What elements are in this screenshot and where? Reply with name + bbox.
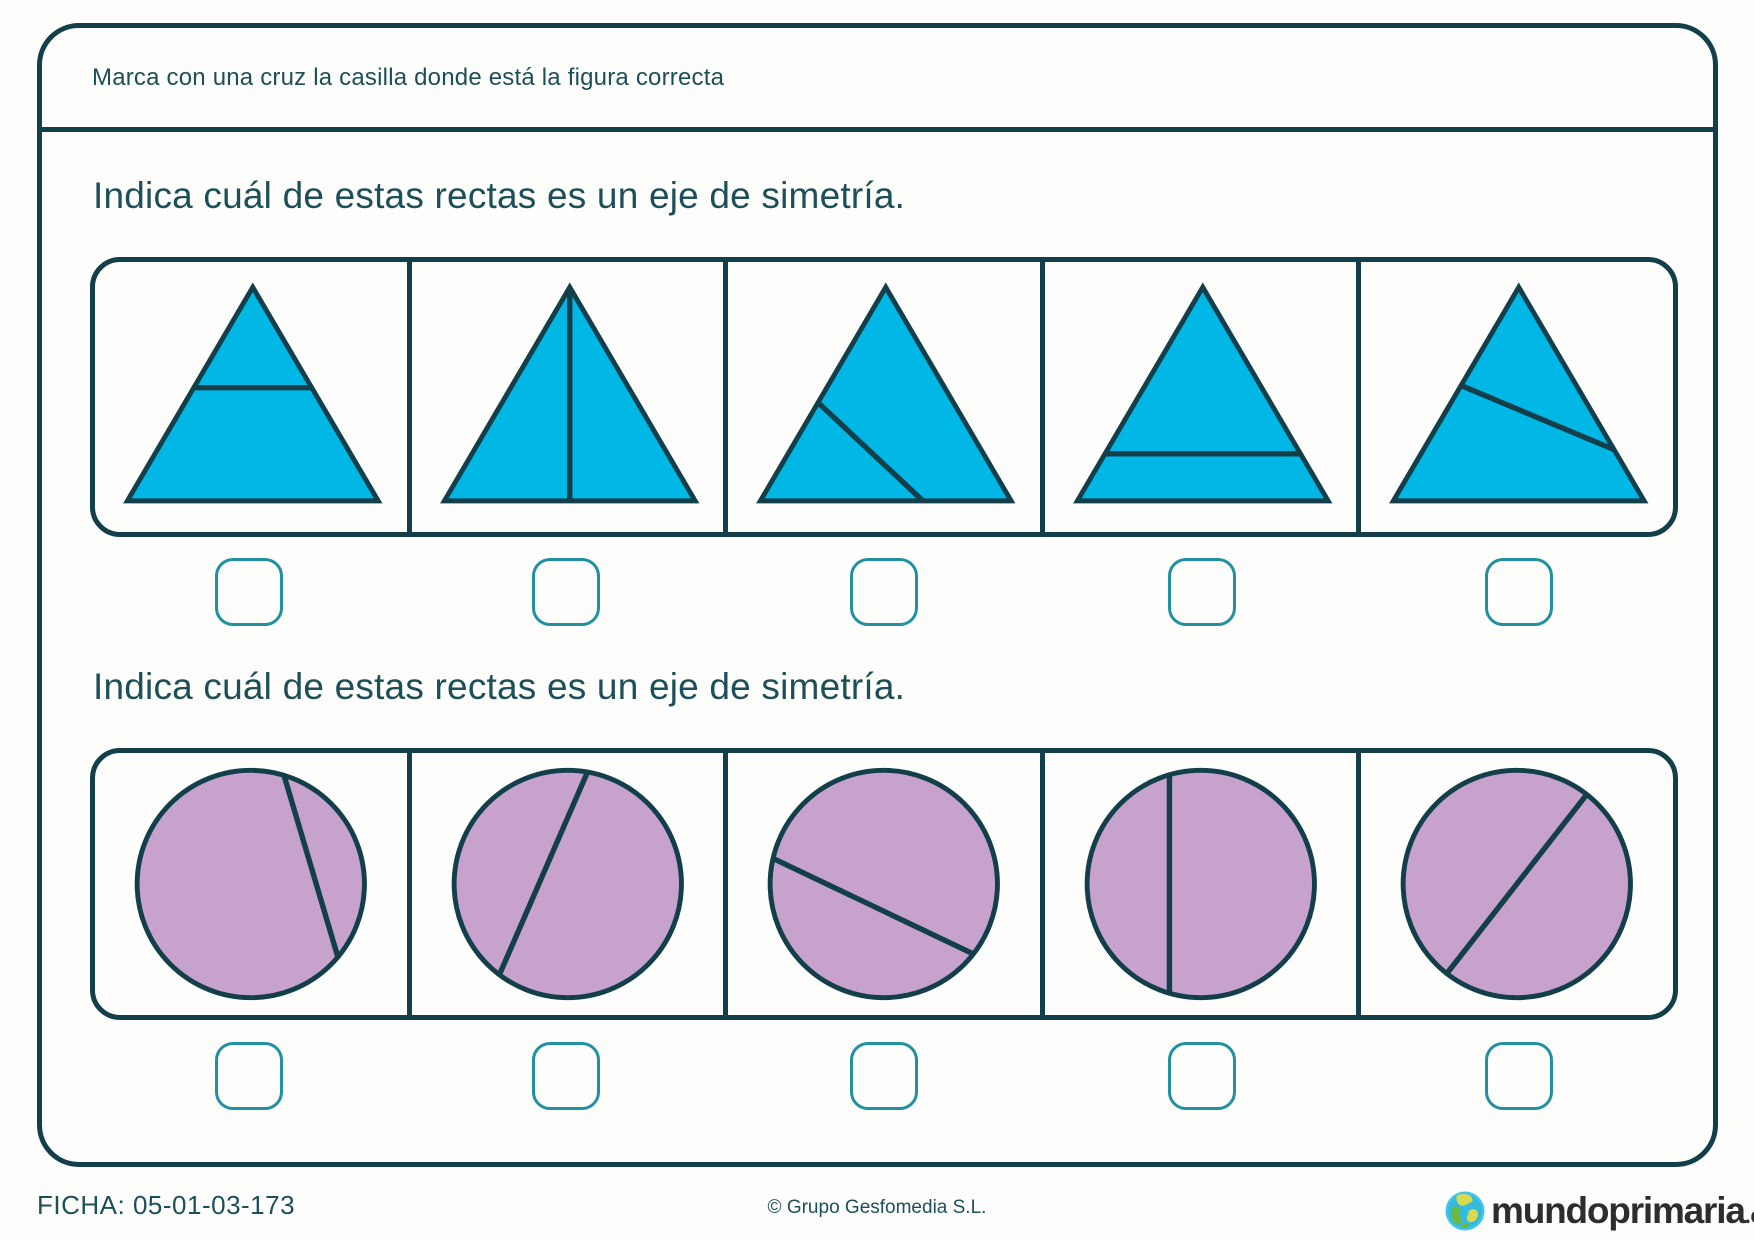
circle-answer-checkbox-row: [90, 1042, 1678, 1110]
triangle-answer-checkbox-row: [90, 558, 1678, 626]
answer-checkbox-circles-4[interactable]: [1168, 1042, 1236, 1110]
checkbox-slot: [725, 558, 1043, 626]
answer-checkbox-triangles-3[interactable]: [850, 558, 918, 626]
checkbox-slot: [1360, 558, 1678, 626]
triangle-lower-horizontal-line: [1045, 262, 1357, 532]
answer-checkbox-triangles-4[interactable]: [1168, 558, 1236, 626]
worksheet-header: Marca con una cruz la casilla donde está…: [42, 28, 1713, 132]
checkbox-slot: [1360, 1042, 1678, 1110]
circle-chord-top-to-lower-right: [95, 753, 407, 1015]
worksheet-sheet: Marca con una cruz la casilla donde está…: [37, 23, 1718, 1167]
answer-checkbox-triangles-1[interactable]: [215, 558, 283, 626]
logo-wordmark: mundoprimaria: [1491, 1190, 1745, 1232]
figure-cell-circles-3: [723, 753, 1040, 1015]
figure-cell-triangles-5: [1356, 262, 1673, 532]
figure-cell-circles-5: [1356, 753, 1673, 1015]
mundoprimaria-logo: mundoprimaria.com: [1444, 1181, 1754, 1232]
circle-options-row: [90, 748, 1678, 1020]
checkbox-slot: [1043, 558, 1361, 626]
answer-checkbox-triangles-2[interactable]: [532, 558, 600, 626]
checkbox-slot: [408, 1042, 726, 1110]
circle-vertical-off-center-chord: [1045, 753, 1357, 1015]
figure-cell-circles-2: [407, 753, 724, 1015]
figure-cell-triangles-3: [723, 262, 1040, 532]
figure-cell-triangles-4: [1040, 262, 1357, 532]
checkbox-slot: [90, 1042, 408, 1110]
triangle-diagonal-left-to-base-line: [728, 262, 1040, 532]
header-instruction-text: Marca con una cruz la casilla donde está…: [92, 64, 724, 92]
logo-domain-suffix: .com: [1745, 1203, 1754, 1229]
answer-checkbox-circles-5[interactable]: [1485, 1042, 1553, 1110]
checkbox-slot: [90, 558, 408, 626]
worksheet-page: Marca con una cruz la casilla donde está…: [0, 0, 1754, 1240]
figure-cell-circles-1: [95, 753, 407, 1015]
checkbox-slot: [1043, 1042, 1361, 1110]
triangle-upper-horizontal-line: [95, 262, 407, 532]
figure-cell-circles-4: [1040, 753, 1357, 1015]
checkbox-slot: [408, 558, 726, 626]
checkbox-slot: [725, 1042, 1043, 1110]
section-2-title: Indica cuál de estas rectas es un eje de…: [93, 666, 905, 708]
triangle-diagonal-left-to-right-line: [1361, 262, 1673, 532]
answer-checkbox-circles-3[interactable]: [850, 1042, 918, 1110]
answer-checkbox-circles-2[interactable]: [532, 1042, 600, 1110]
circle-chord-left-to-lower-right: [728, 753, 1040, 1015]
globe-icon: [1444, 1190, 1486, 1232]
circle-diagonal-diameter-symmetry-axis: [1361, 753, 1673, 1015]
figure-cell-triangles-2: [407, 262, 724, 532]
page-footer: FICHA: 05-01-03-173 © Grupo Gesfomedia S…: [0, 1175, 1754, 1240]
triangle-options-row: [90, 257, 1678, 537]
triangle-vertical-symmetry-axis: [412, 262, 724, 532]
circle-chord-top-to-lower-left: [412, 753, 724, 1015]
figure-cell-triangles-1: [95, 262, 407, 532]
answer-checkbox-circles-1[interactable]: [215, 1042, 283, 1110]
section-1-title: Indica cuál de estas rectas es un eje de…: [93, 175, 905, 217]
answer-checkbox-triangles-5[interactable]: [1485, 558, 1553, 626]
